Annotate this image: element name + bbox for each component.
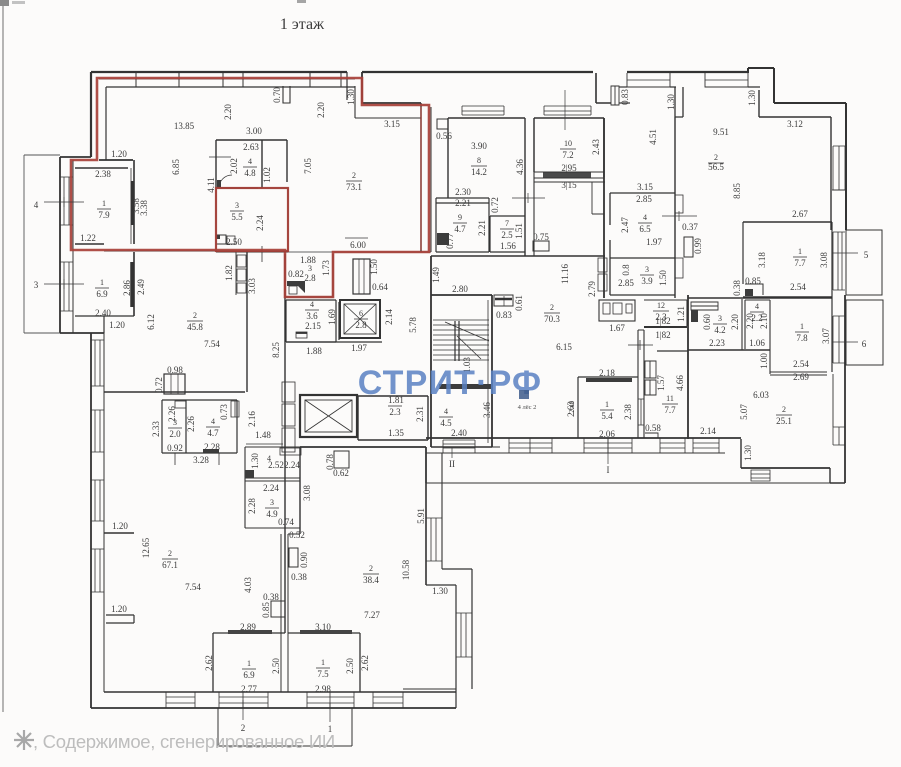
svg-text:2.33: 2.33	[151, 421, 161, 437]
svg-text:0.99: 0.99	[693, 238, 703, 254]
svg-text:8: 8	[477, 156, 481, 165]
svg-text:73.1: 73.1	[346, 182, 362, 192]
svg-text:3: 3	[645, 265, 649, 274]
svg-text:0.70: 0.70	[272, 87, 282, 103]
svg-text:6.85: 6.85	[171, 159, 181, 175]
svg-text:7.27: 7.27	[364, 610, 380, 620]
svg-text:0.38: 0.38	[732, 280, 742, 296]
svg-text:2.50: 2.50	[271, 658, 281, 674]
svg-text:0.72: 0.72	[490, 197, 500, 213]
svg-text:1|82: 1|82	[655, 316, 670, 326]
svg-text:4 лёс 2: 4 лёс 2	[518, 404, 537, 411]
svg-text:2.43: 2.43	[591, 139, 601, 155]
svg-text:2: 2	[714, 153, 718, 162]
svg-text:2.69: 2.69	[793, 372, 809, 382]
svg-text:2.15: 2.15	[305, 321, 321, 331]
svg-text:0.52: 0.52	[289, 530, 305, 540]
svg-text:3.18: 3.18	[757, 252, 767, 268]
svg-text:9.51: 9.51	[713, 127, 729, 137]
svg-text:4: 4	[310, 300, 314, 309]
svg-text:2.38: 2.38	[95, 169, 111, 179]
svg-text:7.05: 7.05	[303, 158, 313, 174]
svg-text:2.8: 2.8	[304, 273, 316, 283]
svg-text:3: 3	[34, 280, 39, 290]
svg-text:5.91: 5.91	[416, 508, 426, 524]
svg-text:4.11: 4.11	[206, 177, 216, 192]
svg-text:2: 2	[352, 171, 356, 180]
svg-text:1.73: 1.73	[321, 260, 331, 276]
svg-text:7.54: 7.54	[204, 339, 220, 349]
svg-text:2.63: 2.63	[243, 142, 259, 152]
svg-text:2: 2	[193, 311, 197, 320]
svg-text:2.24: 2.24	[263, 483, 279, 493]
svg-text:2.54: 2.54	[793, 359, 809, 369]
svg-text:3: 3	[308, 264, 312, 273]
svg-text:2.98: 2.98	[315, 684, 331, 694]
svg-text:3.28: 3.28	[193, 455, 209, 465]
svg-text:3.6: 3.6	[306, 311, 318, 321]
svg-text:1.30: 1.30	[432, 586, 448, 596]
svg-text:7.9: 7.9	[98, 210, 110, 220]
svg-text:2.50: 2.50	[345, 658, 355, 674]
svg-text:1: 1	[800, 322, 804, 331]
svg-text:4.5: 4.5	[440, 418, 452, 428]
svg-text:1.20: 1.20	[109, 320, 125, 330]
svg-text:7.5: 7.5	[317, 669, 329, 679]
svg-text:2.47: 2.47	[620, 217, 630, 233]
svg-text:1.48: 1.48	[255, 430, 271, 440]
svg-text:2.5: 2.5	[501, 230, 513, 240]
svg-text:1.22: 1.22	[80, 233, 96, 243]
svg-text:0.74: 0.74	[278, 517, 294, 527]
svg-text:2.0: 2.0	[169, 429, 181, 439]
svg-text:1: 1	[100, 278, 104, 287]
svg-text:5: 5	[864, 250, 869, 260]
svg-text:2.49: 2.49	[136, 279, 146, 295]
svg-text:2.28: 2.28	[204, 442, 220, 452]
svg-text:1.97: 1.97	[646, 237, 662, 247]
svg-text:7: 7	[505, 219, 509, 228]
svg-text:7.54: 7.54	[185, 582, 201, 592]
svg-text:3.10: 3.10	[315, 622, 331, 632]
svg-text:2.77: 2.77	[241, 684, 257, 694]
svg-text:6.5: 6.5	[639, 224, 651, 234]
svg-text:3.9: 3.9	[641, 276, 653, 286]
svg-text:1.30: 1.30	[743, 445, 753, 461]
svg-text:2.3: 2.3	[389, 407, 401, 417]
svg-text:0.98: 0.98	[167, 365, 183, 375]
svg-text:1.57: 1.57	[656, 375, 666, 391]
svg-text:14.2: 14.2	[471, 167, 487, 177]
svg-text:70.3: 70.3	[544, 314, 560, 324]
svg-text:0.38: 0.38	[263, 592, 279, 602]
svg-text:25.1: 25.1	[776, 416, 792, 426]
svg-text:2.62: 2.62	[360, 655, 370, 671]
svg-text:4.36: 4.36	[515, 159, 525, 175]
svg-text:5.78: 5.78	[408, 317, 418, 333]
svg-text:5.4: 5.4	[601, 411, 613, 421]
svg-text:2.31: 2.31	[415, 406, 425, 422]
svg-text:2.26: 2.26	[186, 416, 196, 432]
svg-text:2.79: 2.79	[587, 281, 597, 297]
svg-text:1.20: 1.20	[111, 604, 127, 614]
svg-text:2.16: 2.16	[247, 411, 257, 427]
svg-text:4: 4	[211, 417, 215, 426]
svg-text:3.12: 3.12	[787, 119, 803, 129]
svg-text:1.02: 1.02	[262, 167, 272, 183]
svg-text:0.61: 0.61	[514, 295, 524, 311]
svg-text:0.72: 0.72	[154, 377, 164, 393]
svg-text:6.03: 6.03	[753, 390, 769, 400]
svg-text:7.7: 7.7	[664, 405, 676, 415]
svg-text:1: 1	[321, 658, 325, 667]
svg-text:2.50: 2.50	[226, 237, 242, 247]
svg-text:4: 4	[643, 213, 647, 222]
svg-text:7.7: 7.7	[794, 258, 806, 268]
svg-text:38.4: 38.4	[363, 575, 379, 585]
svg-text:3: 3	[235, 201, 239, 210]
svg-text:3: 3	[718, 314, 722, 323]
svg-text:45.8: 45.8	[187, 322, 203, 332]
svg-text:1.50: 1.50	[658, 270, 668, 286]
svg-text:1: 1	[605, 400, 609, 409]
svg-text:2.18: 2.18	[599, 368, 615, 378]
svg-text:4.7: 4.7	[454, 224, 466, 234]
svg-text:2.20: 2.20	[745, 313, 755, 329]
svg-text:4.03: 4.03	[243, 577, 253, 593]
svg-text:2.14: 2.14	[700, 426, 716, 436]
svg-text:2.10: 2.10	[759, 313, 769, 329]
svg-text:1.97: 1.97	[351, 343, 367, 353]
svg-text:3.07: 3.07	[821, 328, 831, 344]
svg-text:1.35: 1.35	[388, 428, 404, 438]
svg-text:1.06: 1.06	[749, 338, 765, 348]
svg-text:2.06: 2.06	[599, 429, 615, 439]
svg-text:3.00: 3.00	[246, 126, 262, 136]
svg-text:2.8: 2.8	[355, 320, 367, 330]
svg-text:2.62: 2.62	[204, 655, 214, 671]
svg-text:1: 1	[102, 199, 106, 208]
svg-text:0.60: 0.60	[702, 314, 712, 330]
svg-text:0.62: 0.62	[333, 468, 349, 478]
svg-text:II: II	[449, 459, 455, 469]
svg-text:2.40: 2.40	[568, 400, 576, 413]
svg-text:1.30: 1.30	[346, 89, 356, 105]
svg-text:6.00: 6.00	[350, 240, 366, 250]
svg-text:0.73: 0.73	[219, 404, 229, 420]
svg-text:, Содержимое, сгенерированное: , Содержимое, сгенерированное ИИ	[33, 731, 335, 752]
svg-text:2.24: 2.24	[255, 215, 265, 231]
svg-text:0.38: 0.38	[291, 572, 307, 582]
svg-text:3: 3	[270, 498, 274, 507]
svg-text:7.8: 7.8	[796, 333, 808, 343]
svg-text:4.7: 4.7	[207, 428, 219, 438]
svg-text:4.2: 4.2	[714, 325, 725, 335]
svg-text:1.30: 1.30	[747, 90, 757, 106]
svg-text:3.90: 3.90	[471, 141, 487, 151]
svg-text:0.77: 0.77	[445, 233, 455, 249]
svg-text:3.38: 3.38	[139, 200, 149, 216]
svg-text:1: 1	[247, 659, 251, 668]
svg-text:2: 2	[782, 405, 786, 414]
svg-text:10.58: 10.58	[401, 559, 411, 580]
svg-text:2.21: 2.21	[477, 220, 487, 236]
svg-text:1: 1	[798, 247, 802, 256]
svg-text:6.9: 6.9	[96, 289, 108, 299]
svg-text:13.85: 13.85	[174, 121, 195, 131]
svg-text:67.1: 67.1	[162, 560, 178, 570]
svg-text:2.40: 2.40	[451, 428, 467, 438]
svg-text:2.40: 2.40	[95, 308, 111, 318]
svg-text:2: 2	[168, 549, 172, 558]
svg-text:3.46: 3.46	[482, 402, 492, 418]
svg-text:2.23: 2.23	[709, 338, 725, 348]
svg-text:4: 4	[248, 157, 252, 166]
svg-text:3.03: 3.03	[247, 278, 257, 294]
svg-text:6: 6	[862, 339, 867, 349]
svg-text:0.75: 0.75	[533, 232, 549, 242]
svg-text:1.00: 1.00	[759, 353, 769, 369]
svg-text:2.14: 2.14	[384, 309, 394, 325]
svg-text:3: 3	[173, 418, 177, 427]
svg-text:2.20: 2.20	[316, 102, 326, 118]
svg-text:1.67: 1.67	[609, 323, 625, 333]
svg-text:1.88: 1.88	[306, 346, 322, 356]
svg-text:3.15: 3.15	[637, 182, 653, 192]
svg-text:I: I	[607, 465, 610, 475]
svg-text:3.08: 3.08	[302, 485, 312, 501]
svg-text:6.15: 6.15	[556, 342, 572, 352]
svg-text:10: 10	[564, 139, 572, 148]
svg-text:5.07: 5.07	[739, 404, 749, 420]
svg-text:11: 11	[666, 394, 674, 403]
svg-text:7.2: 7.2	[562, 150, 573, 160]
svg-text:3.08: 3.08	[819, 252, 829, 268]
svg-text:6.9: 6.9	[243, 670, 255, 680]
svg-text:0.85: 0.85	[261, 602, 271, 618]
svg-text:1.56: 1.56	[500, 241, 516, 251]
svg-text:0.64: 0.64	[372, 282, 388, 292]
svg-text:4: 4	[444, 407, 448, 416]
svg-text:2.20: 2.20	[223, 104, 233, 120]
svg-text:1.30: 1.30	[666, 94, 676, 110]
svg-text:2.52: 2.52	[268, 460, 284, 470]
svg-text:4.8: 4.8	[244, 168, 256, 178]
svg-text:4: 4	[34, 200, 39, 210]
svg-text:56.5: 56.5	[708, 162, 724, 172]
svg-text:1.50: 1.50	[369, 259, 379, 275]
svg-text:1.82: 1.82	[224, 265, 234, 281]
svg-text:1.20: 1.20	[111, 149, 127, 159]
svg-text:1.49: 1.49	[431, 267, 441, 283]
svg-text:6.12: 6.12	[146, 314, 156, 330]
svg-text:2.24: 2.24	[284, 460, 300, 470]
svg-text:2.85: 2.85	[618, 278, 634, 288]
svg-text:0.83: 0.83	[496, 310, 512, 320]
svg-text:5.5: 5.5	[231, 212, 243, 222]
svg-text:12.65: 12.65	[141, 537, 151, 558]
svg-text:2.54: 2.54	[790, 282, 806, 292]
svg-text:9: 9	[458, 213, 462, 222]
svg-text:2.38: 2.38	[623, 404, 633, 420]
svg-text:6: 6	[359, 309, 363, 318]
svg-text:1.21: 1.21	[676, 306, 686, 322]
svg-text:4: 4	[755, 302, 759, 311]
svg-text:2.67: 2.67	[792, 209, 808, 219]
svg-text:11.16: 11.16	[560, 264, 570, 284]
svg-text:2.85: 2.85	[636, 194, 652, 204]
svg-text:0.37: 0.37	[682, 222, 698, 232]
svg-text:0.56: 0.56	[436, 131, 452, 141]
svg-text:1.20: 1.20	[112, 521, 128, 531]
svg-text:1.30: 1.30	[250, 453, 260, 469]
svg-text:1|82: 1|82	[655, 330, 670, 340]
svg-text:2.28: 2.28	[247, 498, 257, 514]
svg-text:1.69: 1.69	[327, 309, 337, 325]
svg-text:12: 12	[657, 301, 665, 310]
svg-text:0.58: 0.58	[645, 423, 661, 433]
svg-text:2.86: 2.86	[122, 280, 132, 296]
svg-text:4.51: 4.51	[648, 129, 658, 145]
svg-text:0.8: 0.8	[621, 264, 631, 276]
svg-text:4.66: 4.66	[675, 375, 685, 391]
svg-text:0.83: 0.83	[620, 89, 630, 105]
svg-text:СТРИТ·РФ: СТРИТ·РФ	[358, 364, 543, 402]
svg-text:1 этаж: 1 этаж	[280, 16, 325, 33]
svg-text:0.85: 0.85	[745, 276, 761, 286]
svg-text:2.80: 2.80	[452, 284, 468, 294]
svg-text:2.30: 2.30	[455, 187, 471, 197]
svg-text:2.20: 2.20	[730, 314, 740, 330]
svg-text:2.21: 2.21	[455, 198, 471, 208]
svg-text:3.15: 3.15	[384, 119, 400, 129]
svg-text:8.85: 8.85	[732, 183, 742, 199]
svg-text:0.90: 0.90	[299, 552, 309, 568]
svg-text:1.51: 1.51	[514, 223, 524, 239]
svg-text:0.92: 0.92	[167, 443, 183, 453]
svg-text:2.02: 2.02	[229, 158, 239, 174]
svg-text:8.25: 8.25	[271, 342, 281, 358]
svg-text:2: 2	[550, 303, 554, 312]
svg-text:0.82: 0.82	[288, 269, 304, 279]
svg-text:2|95: 2|95	[561, 163, 577, 173]
svg-text:3|15: 3|15	[561, 180, 577, 190]
svg-text:4.9: 4.9	[266, 509, 278, 519]
svg-text:2: 2	[369, 564, 373, 573]
svg-text:2.89: 2.89	[240, 622, 256, 632]
